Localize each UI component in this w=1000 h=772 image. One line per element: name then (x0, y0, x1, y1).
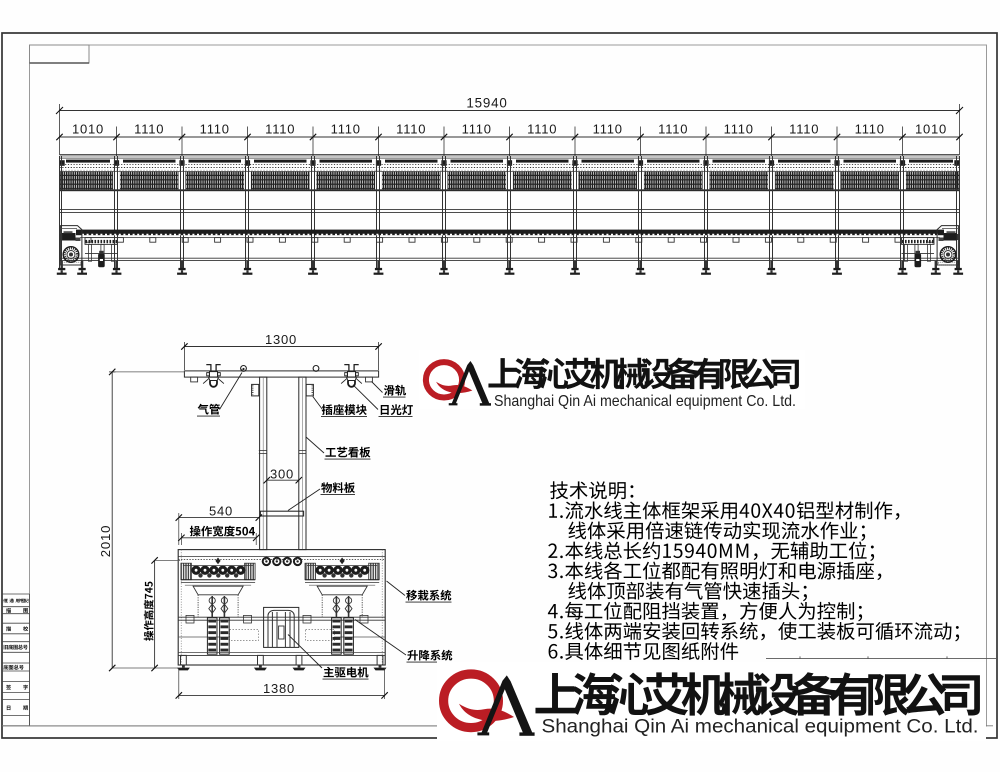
svg-text:Shanghai Qin Ai mechanical equ: Shanghai Qin Ai mechanical equipment Co.… (542, 716, 979, 738)
svg-text:1110: 1110 (134, 122, 164, 137)
svg-text:1110: 1110 (658, 122, 688, 137)
svg-text:1380: 1380 (263, 681, 295, 696)
svg-text:2010: 2010 (98, 525, 113, 558)
svg-text:1110: 1110 (265, 122, 295, 137)
svg-text:1110: 1110 (789, 122, 819, 137)
svg-text:1110: 1110 (200, 122, 230, 137)
svg-text:1010: 1010 (915, 122, 947, 137)
svg-text:1110: 1110 (593, 122, 623, 137)
svg-text:1300: 1300 (265, 332, 297, 347)
svg-text:1110: 1110 (331, 122, 361, 137)
svg-text:15940: 15940 (466, 96, 507, 111)
svg-text:540: 540 (209, 503, 233, 518)
svg-text:1110: 1110 (527, 122, 557, 137)
svg-text:300: 300 (270, 467, 294, 482)
svg-text:1110: 1110 (462, 122, 492, 137)
svg-text:1110: 1110 (724, 122, 754, 137)
svg-text:1110: 1110 (396, 122, 426, 137)
svg-text:1010: 1010 (72, 122, 104, 137)
svg-text:1110: 1110 (855, 122, 885, 137)
svg-text:Shanghai Qin Ai mechanical equ: Shanghai Qin Ai mechanical equipment Co.… (494, 393, 796, 410)
